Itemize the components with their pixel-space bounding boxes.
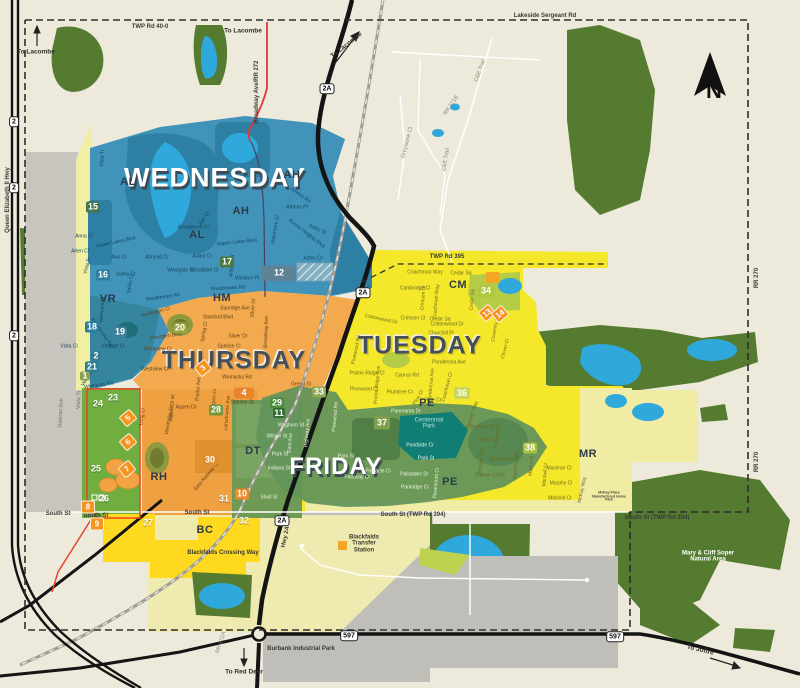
road-label: TWP Rd 40-0 [132, 24, 169, 30]
street-label: Sunrise Cl [217, 344, 240, 349]
street-label: Pinewood Cl [350, 387, 378, 392]
hwy-2a-south [257, 643, 259, 688]
street-label: Waghorn St [278, 423, 304, 428]
highway-shield: 2A [275, 515, 290, 526]
zone-number-badge: 36 [454, 387, 470, 399]
street-label: Ponderosa Ave [432, 360, 466, 365]
pond [632, 403, 664, 421]
street-label: Broadway Ave [264, 316, 270, 348]
zone-number-badge: 28 [209, 405, 223, 416]
road-label: RR 270 [754, 268, 760, 288]
zone-number-badge: 24 [91, 399, 105, 410]
zone-number-badge: 23 [106, 393, 120, 404]
place-label: Blackfalds Transfer Station [343, 535, 385, 554]
street-label: Cottonwood Dr [430, 322, 463, 327]
street-label: Panorama Dr [391, 409, 421, 414]
street-label: Wilson St [266, 434, 287, 439]
zone-number-badge: 26 [97, 494, 111, 505]
street-label: Cedar Sq [450, 271, 471, 276]
neighborhood-code: AL [189, 230, 205, 242]
zone-number-badge: 12 [262, 266, 296, 281]
zone-number-badge: 25 [89, 464, 103, 475]
street-label: Prairie Ridge Cl [349, 371, 384, 376]
street-label: Pondside Cr [406, 443, 434, 448]
zone-number-badge: 38 [523, 443, 537, 454]
park-label: Centennial Park [409, 418, 449, 431]
place-label: McKay Place Manufactured Home Park [589, 491, 629, 502]
highway-shield: 597 [606, 631, 624, 642]
zone-number-badge: 9 [90, 518, 104, 531]
zone-number-badge: 19 [113, 327, 127, 338]
direction-label: To Lacombe [224, 29, 262, 36]
street-label: Stanford Blvd [203, 315, 233, 320]
street-label: Palmer Circle [475, 473, 505, 478]
street-label: Arlen Cl [71, 249, 89, 254]
road-label: RR 270 [754, 452, 760, 472]
street-label: Park St [272, 452, 288, 457]
street-label: Woodbine Cl [190, 268, 219, 273]
place-label: Mary & Cliff Soper Natural Area [675, 551, 741, 564]
neighborhood-code: CM [449, 280, 467, 292]
street-label: Murphy Cl [550, 481, 573, 486]
zone-number-badge: 37 [374, 417, 390, 430]
zone-number-badge: 31 [217, 494, 231, 505]
zone-number-badge: 32 [237, 516, 251, 527]
street-label: Parkridge Cr [401, 485, 429, 490]
street-label: Adina Cl [193, 254, 212, 259]
road-end [300, 544, 304, 548]
zone-number-badge: 11 [273, 408, 285, 418]
street-label: Park St [418, 456, 434, 461]
zone-number-badge: 4 [234, 388, 254, 399]
zone-number-badge: 33 [312, 387, 326, 398]
highway-shield: 2A [356, 287, 371, 298]
street-label: Aztec Cr [303, 256, 322, 261]
street-label: Plumtree Cr [387, 390, 414, 395]
road-label: Lakeside Sergeant Rd [514, 13, 577, 19]
zone-label-wednesday: WEDNESDAY [124, 163, 306, 194]
place-label: Burbank Industrial Park [267, 646, 335, 652]
street-label: Silver Dr [228, 334, 247, 339]
street-label: Vista Tr [100, 149, 106, 166]
zone-label-tuesday: TUESDAY [358, 332, 482, 361]
street-label: Sunridge Ave [220, 306, 250, 311]
highway-shield: 2 [9, 116, 19, 127]
street-label: Mitchell Cr [548, 496, 572, 501]
highway-shield: 597 [340, 630, 358, 641]
road-end [585, 578, 589, 582]
street-label: Churchill Pl [428, 331, 453, 336]
neighborhood-code: PE [442, 477, 458, 489]
zone-number-badge: 20 [173, 323, 187, 334]
street-label: Pinetree Cl [470, 425, 495, 430]
zone-number-badge: 30 [203, 455, 217, 466]
neighborhood-code: BC [197, 525, 214, 537]
road-label: South St (TWP Rd 394) [381, 512, 446, 518]
zone-number-badge: 34 [478, 285, 494, 298]
street-label: Almond Cr [145, 255, 169, 260]
bc-lake [199, 583, 245, 609]
street-label: Gregg St [291, 382, 311, 387]
neighborhood-code: AL [120, 177, 136, 189]
road-label: TWP Rd 395 [430, 254, 465, 260]
compass-north-label: N [706, 78, 722, 104]
direction-label: To Red Deer [225, 670, 263, 677]
road-label: South St [46, 511, 71, 517]
compass: N [688, 46, 736, 106]
road-label: Queen Elizabeth II Hwy [5, 167, 11, 233]
neighborhood-code: PE [419, 398, 435, 410]
neighborhood-code: HM [213, 293, 231, 305]
street-label: Crimson Ct [400, 316, 425, 321]
highway-shield: 2A [320, 83, 335, 94]
street-label: Stanley St [231, 400, 254, 405]
street-label: Winston Pl [235, 276, 259, 281]
neighborhood-code: VR [100, 294, 116, 306]
road-label: Broadway Ave/RR 272 [254, 61, 260, 124]
street-label: Indiana St [268, 466, 291, 471]
zone-number-badge: 18 [85, 322, 99, 333]
street-label: Womacks Rd [222, 375, 252, 380]
zone-number-badge: 1 [80, 372, 90, 381]
road-label: South St (TWP Rd 394) [625, 515, 690, 521]
street-label: Athens Pl [286, 205, 307, 210]
neighborhood-code: MR [579, 449, 597, 461]
zone-number-badge: 15 [86, 202, 100, 213]
neighborhood-code: AH [233, 206, 250, 218]
street-label: Vista Cl [60, 344, 77, 349]
zone-number-badge: 10 [235, 489, 249, 500]
highway-shield: 2 [9, 330, 19, 341]
zone-number-badge: 2 [91, 352, 101, 361]
street-label: Maclean Cl [546, 466, 571, 471]
place-label: Blackfalds Crossing Way [187, 550, 258, 556]
street-label: Westview Cr [141, 367, 169, 372]
street-label: Shull St [260, 495, 277, 500]
pond [498, 278, 522, 294]
street-label: Palisades St [400, 472, 428, 477]
zone-number-badge: 16 [96, 270, 110, 281]
neighborhood-code: AH [284, 170, 301, 182]
street-label: Park St [338, 454, 354, 459]
street-label: Aspen Dr [176, 405, 197, 410]
blackfalds-zone-map: WEDNESDAY THURSDAY TUESDAY FRIDAY N TWP … [0, 0, 800, 688]
street-label: Ava Cr [111, 255, 126, 260]
hatched-area [297, 263, 333, 281]
pond [605, 394, 627, 408]
neighborhood-code: RH [151, 472, 168, 484]
street-label: Parkway Cl [344, 475, 369, 480]
zone-number-badge: 8 [81, 501, 95, 514]
zone-label-thursday: THURSDAY [162, 347, 307, 376]
street-label: Westview Cr [144, 347, 172, 352]
street-label: Coachman Way [407, 270, 442, 275]
zone-number-badge: 17 [220, 257, 234, 268]
street-label: Cyprus Rd [395, 373, 419, 378]
orange-patch [486, 272, 499, 283]
street-label: Vista Tr [77, 391, 84, 410]
neighborhood-code: DT [245, 446, 261, 458]
zone-number-badge: 29 [270, 398, 284, 409]
street-label: Anna Cl [75, 234, 93, 239]
zone-number-badge: 27 [141, 518, 155, 529]
road-label: South St [185, 510, 210, 516]
highway-shield: 2 [9, 182, 19, 193]
direction-label: To Lacombe [17, 50, 55, 57]
